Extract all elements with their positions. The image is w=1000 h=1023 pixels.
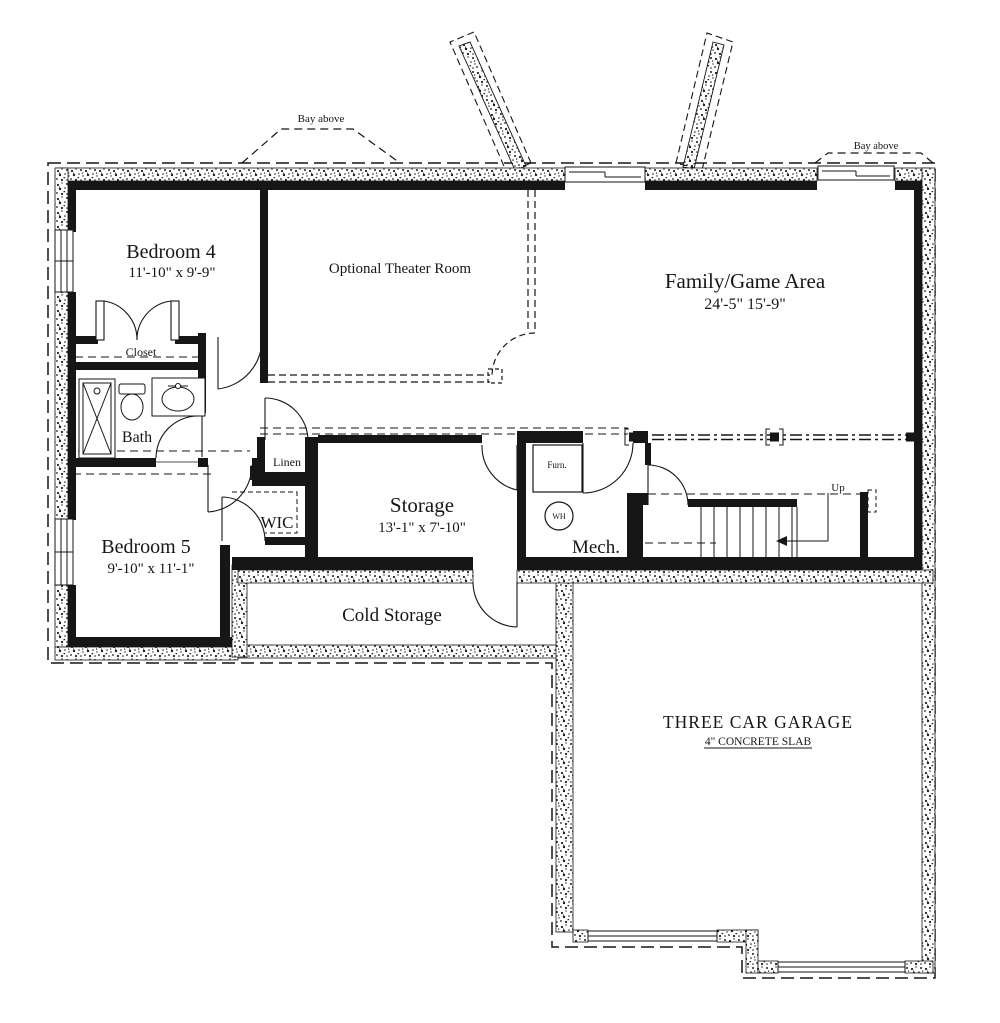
bedroom4-label: Bedroom 4	[126, 241, 215, 263]
bath-door	[156, 413, 202, 462]
water-heater-label: WH	[552, 512, 566, 521]
sink-vanity	[152, 378, 205, 416]
bedroom5-dims: 9'-10" x 11'-1"	[107, 561, 194, 577]
bedroom5-label: Bedroom 5	[101, 536, 190, 558]
garage-label: THREE CAR GARAGE	[663, 712, 853, 732]
up-label: Up	[831, 482, 845, 494]
storage-dims: 13'-1" x 7'-10"	[378, 520, 466, 536]
wic-label: WIC	[260, 513, 293, 532]
floor-plan-page: Bay above Bay above Bedroom 4 11'-10" x …	[0, 0, 1000, 1023]
cold-storage-label: Cold Storage	[342, 605, 442, 626]
family-label: Family/Game Area	[665, 269, 826, 293]
toilet	[119, 384, 145, 420]
stair-door	[648, 465, 688, 505]
bay-above-right-label: Bay above	[854, 141, 899, 152]
fixtures	[79, 378, 582, 530]
bedroom4-dims: 11'-10" x 9'-9"	[128, 265, 215, 281]
floor-plan-drawing: Bay above Bay above Bedroom 4 11'-10" x …	[0, 0, 1000, 1023]
beam-line	[625, 429, 919, 445]
beam-posts	[629, 433, 915, 442]
mech-door	[583, 443, 633, 493]
hall-door	[218, 337, 262, 389]
shower-tub	[79, 379, 115, 458]
bedroom5-window	[55, 519, 73, 585]
window-wells	[450, 32, 733, 173]
garage-slab-note: 4" CONCRETE SLAB	[705, 736, 812, 748]
storage-door	[482, 445, 517, 490]
furnace-label: Furn.	[547, 460, 566, 470]
bay-above-outlines	[242, 129, 933, 163]
bay-above-left-label: Bay above	[298, 113, 345, 125]
bay-window-right	[818, 166, 894, 180]
mech-label: Mech.	[572, 537, 620, 558]
cold-storage-door	[473, 582, 517, 627]
theater-label: Optional Theater Room	[329, 261, 472, 277]
wic-door	[222, 497, 265, 541]
family-dims: 24'-5" 15'-9"	[704, 296, 785, 313]
bedroom5-door	[208, 465, 252, 512]
bedroom4-window	[55, 230, 73, 292]
storage-label: Storage	[390, 493, 454, 517]
linen-label: Linen	[273, 455, 301, 469]
closet-double-doors	[96, 301, 179, 340]
windows	[55, 166, 894, 585]
bath-label: Bath	[122, 429, 152, 446]
optional-theater-walls	[268, 190, 535, 383]
top-window	[565, 167, 645, 182]
closet-label: Closet	[126, 345, 157, 359]
